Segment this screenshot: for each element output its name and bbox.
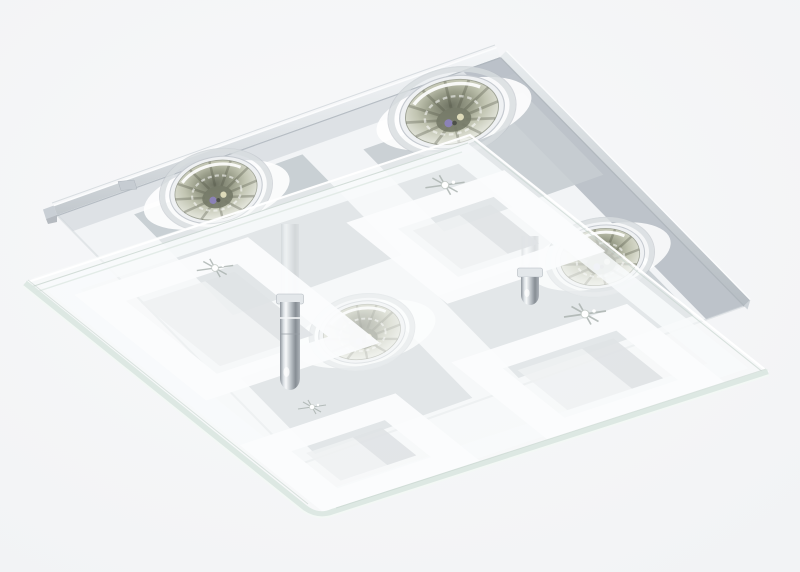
mounting-bracket-tab [118,180,137,191]
ceiling-light-illustration [0,0,800,572]
product-photo [0,0,800,572]
standoff-post-left [277,294,304,390]
